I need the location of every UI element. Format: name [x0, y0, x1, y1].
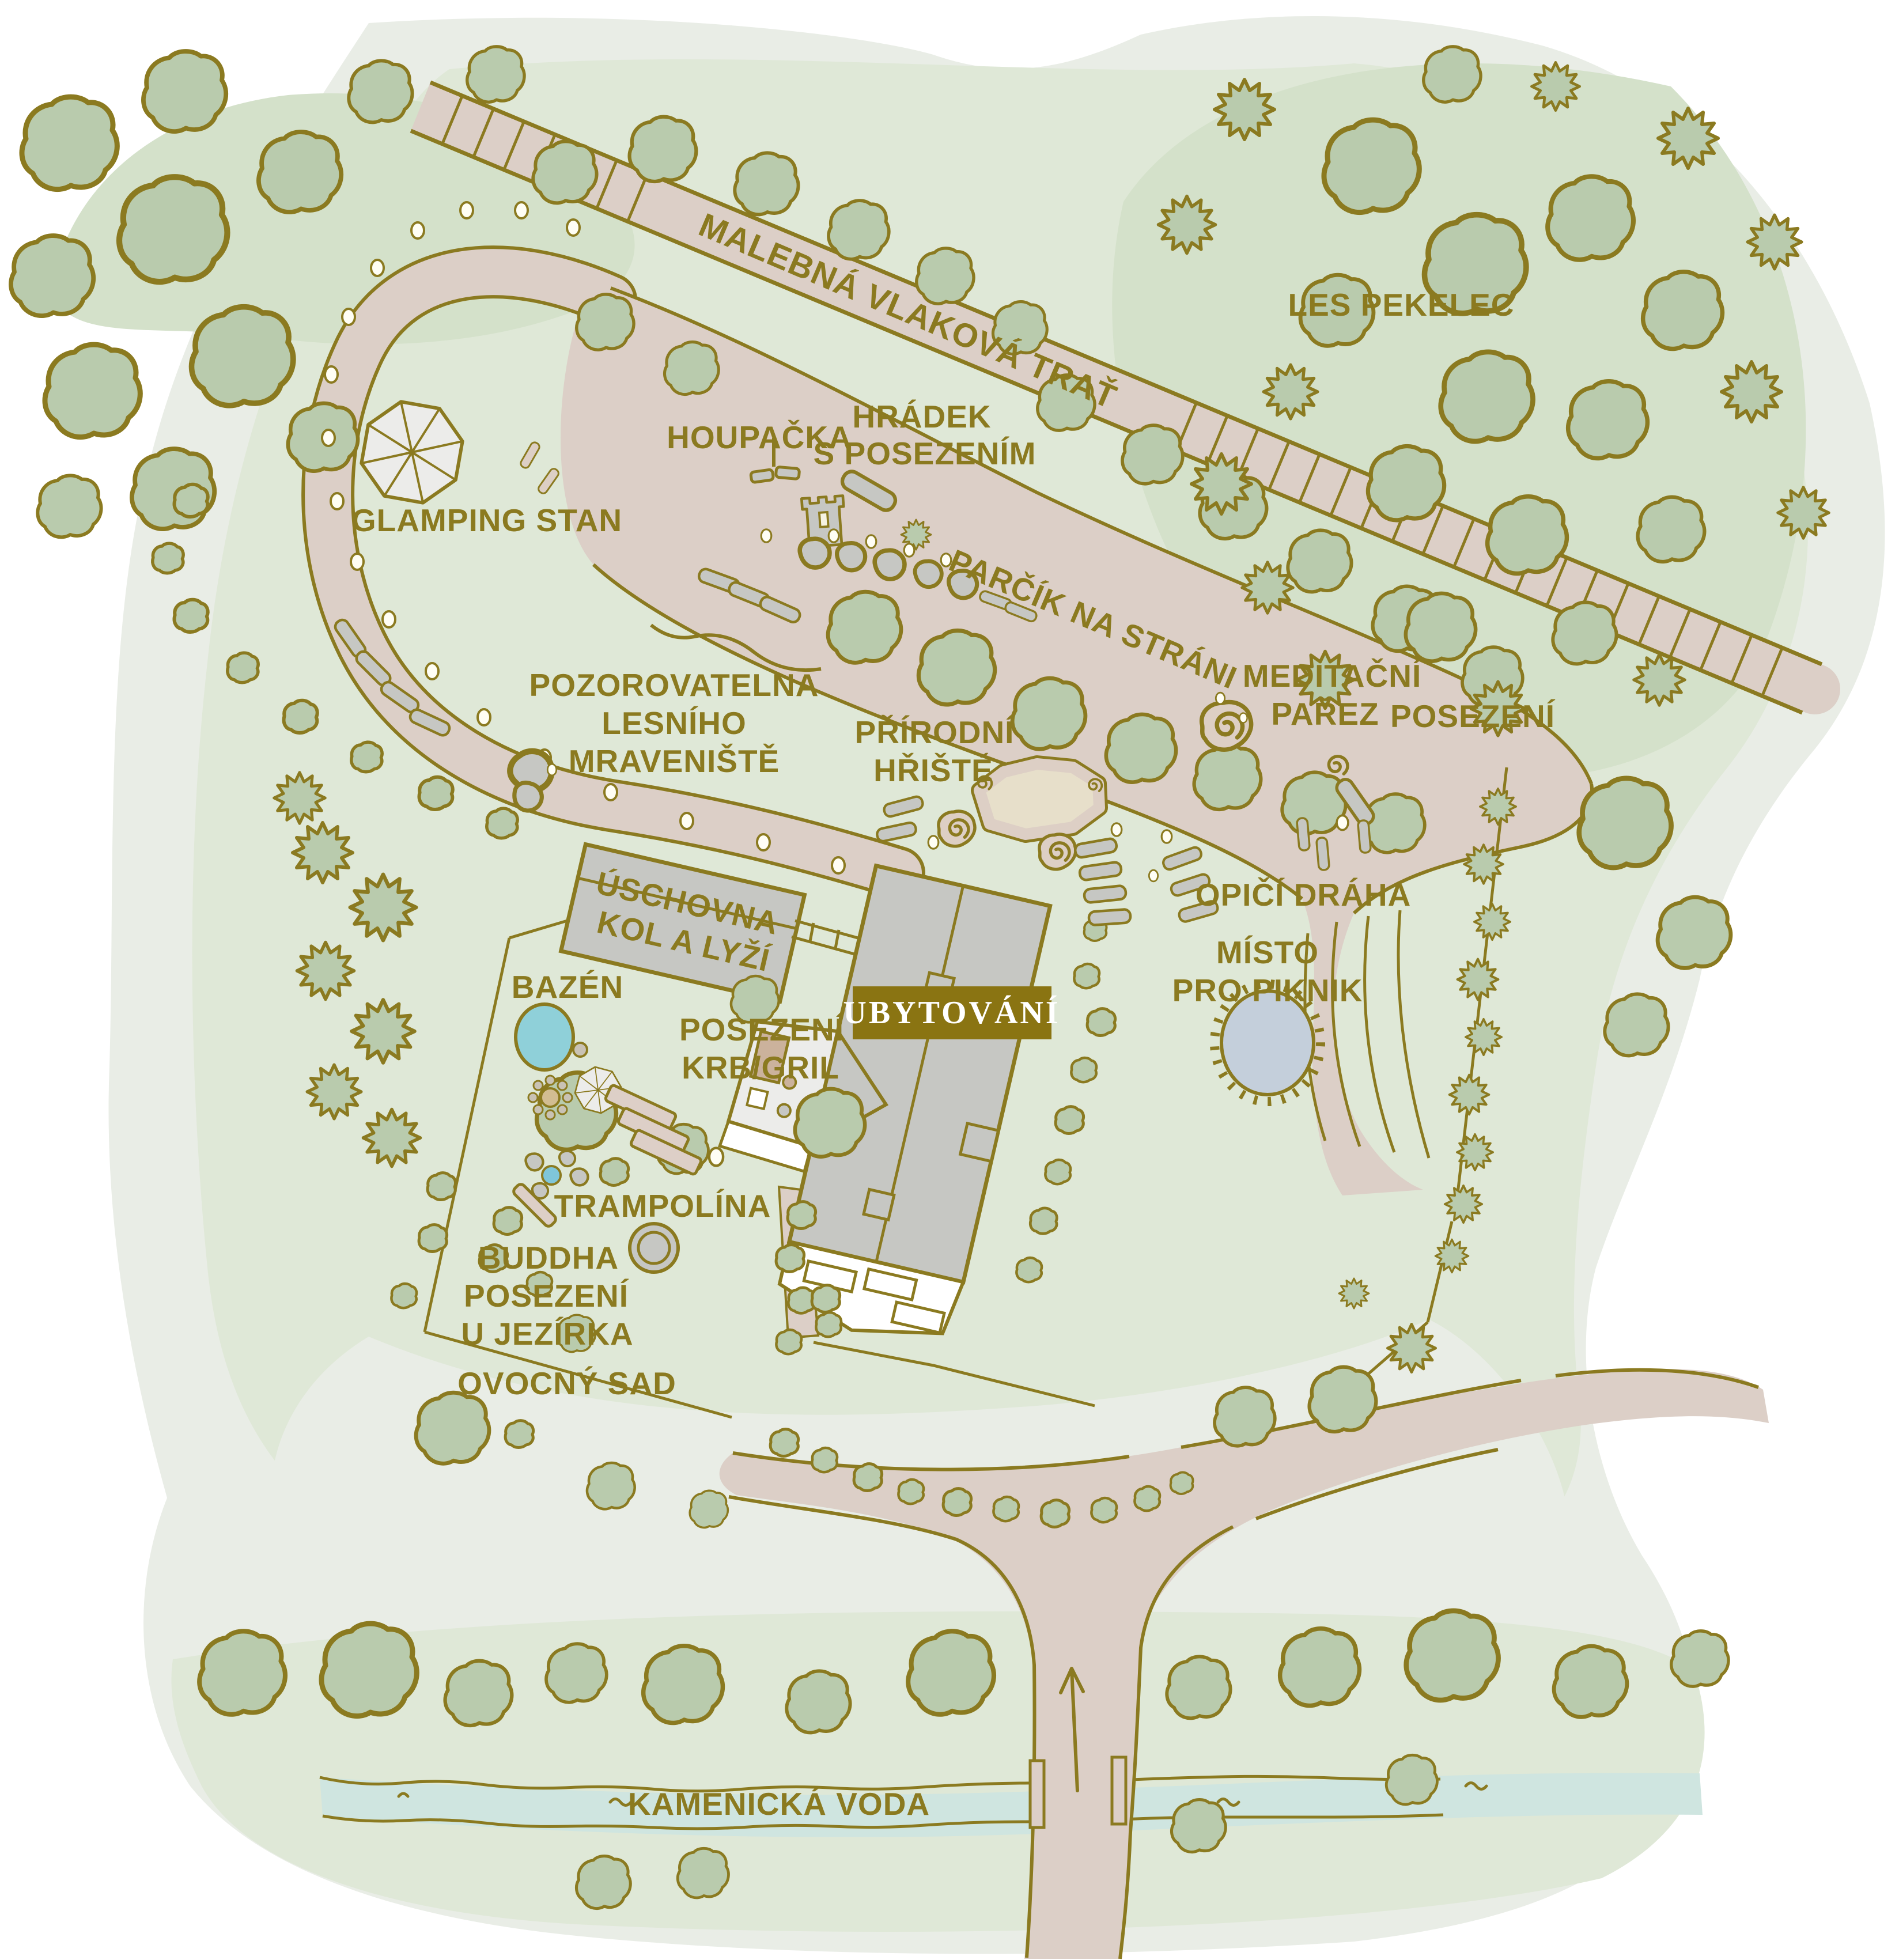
tree [1167, 1656, 1230, 1718]
tree [1364, 794, 1425, 853]
tree [917, 248, 974, 304]
label-buddha: BUDDHA [478, 1240, 619, 1276]
tree [1012, 678, 1085, 749]
bush [1087, 1009, 1115, 1036]
tree [416, 1393, 489, 1463]
label-meditation: PAŘEZ [1271, 696, 1379, 732]
tree [1310, 1367, 1376, 1432]
bush [1030, 1208, 1057, 1234]
tree [1424, 47, 1481, 102]
tree [533, 141, 596, 203]
bush [1074, 964, 1099, 988]
stone [573, 1043, 587, 1057]
stone [1216, 693, 1224, 704]
tree [11, 236, 93, 316]
tree [690, 1490, 728, 1527]
tree [1638, 497, 1705, 562]
label-river: KAMENICKÁ VODA [628, 1786, 930, 1822]
firepit-icon [528, 1076, 572, 1119]
tree [1172, 1800, 1226, 1852]
label-orchard: OVOCNÝ SAD [457, 1365, 676, 1401]
bush [175, 485, 208, 517]
bush [494, 1208, 521, 1235]
label-buddha: POSEZENÍ [464, 1278, 629, 1314]
bush [419, 777, 453, 809]
bush [770, 1429, 798, 1456]
bush [993, 1497, 1019, 1521]
tree [795, 1089, 865, 1157]
bush [1056, 1107, 1083, 1134]
label-forest: LES PEKELEC [1288, 287, 1514, 323]
spiral-stump-icon [1039, 834, 1076, 869]
bush [175, 600, 208, 632]
tree [587, 1463, 635, 1509]
tree [644, 1646, 723, 1723]
label-buddha: U JEZÍRKA [461, 1316, 633, 1352]
bush [812, 1448, 837, 1472]
sandbox-icon [978, 764, 1102, 834]
tree [829, 200, 889, 259]
bush [600, 1159, 628, 1186]
tree [192, 307, 293, 406]
bush [153, 543, 183, 573]
tree [1280, 1629, 1360, 1706]
bush [816, 1312, 841, 1337]
label-castle: HRÁDEK [852, 399, 991, 434]
tree [37, 475, 101, 537]
tree [1368, 447, 1444, 520]
label-trampoline: TRAMPOLÍNA [554, 1188, 771, 1224]
bush [228, 653, 258, 683]
label-seating-grill: POSEZENÍ [679, 1012, 845, 1047]
spiral-stump-icon [939, 811, 975, 846]
label-meditation: MEDITAČNÍ [1243, 658, 1422, 694]
tree [577, 294, 634, 350]
bush [1071, 1058, 1096, 1082]
bush [1016, 1258, 1042, 1282]
bush [943, 1489, 971, 1516]
stone [1337, 815, 1348, 830]
bush [1134, 1486, 1160, 1511]
bridge-icon [1030, 1761, 1044, 1827]
label-seating-grill: KRB/GRIL [682, 1050, 839, 1085]
tree [1194, 745, 1261, 809]
tree [22, 97, 117, 189]
tree [1215, 1387, 1275, 1446]
bush [1091, 1498, 1117, 1522]
bush [505, 1421, 533, 1448]
label-observatory: LESNÍHO [602, 705, 746, 741]
tree [1406, 1611, 1499, 1700]
tree [119, 177, 227, 282]
bush [419, 1225, 447, 1252]
bush [788, 1202, 815, 1229]
tree [1106, 714, 1176, 782]
tree [1554, 1646, 1627, 1717]
bush [351, 742, 382, 772]
label-pool: BAZÉN [512, 969, 623, 1005]
label-monkey-bars: OPIČÍ DRÁHA [1196, 877, 1412, 913]
tree [1643, 272, 1723, 349]
tree [918, 631, 994, 705]
bush [854, 1464, 882, 1491]
tree [349, 60, 412, 122]
bush [1171, 1472, 1193, 1494]
map-canvas: UBYTOVÁNÍ MALEBNÁ VLAKOVÁ TRAŤ LES PEKEL… [0, 0, 1899, 1960]
meditation-stump-icon [1202, 702, 1251, 750]
tree [321, 1624, 417, 1716]
label-seating-hillside: POSEZENÍ [1390, 698, 1556, 734]
tree [1605, 994, 1668, 1055]
label-picnic: MÍSTO [1216, 934, 1319, 970]
bush [1041, 1500, 1069, 1527]
tree [1406, 593, 1476, 661]
tree [259, 132, 341, 212]
bush [812, 1285, 839, 1312]
tree [1324, 120, 1419, 212]
tree [143, 51, 226, 131]
bush [284, 701, 317, 733]
tree [1288, 530, 1351, 592]
stone [1239, 713, 1247, 723]
pool-shape [516, 1004, 573, 1070]
tree [467, 47, 524, 102]
tree [908, 1631, 994, 1714]
tree [1548, 176, 1633, 259]
bush [776, 1330, 801, 1354]
accommodation-badge-label: UBYTOVÁNÍ [843, 995, 1060, 1031]
accommodation-badge: UBYTOVÁNÍ [843, 986, 1060, 1039]
tree [630, 117, 697, 181]
bench [1296, 818, 1310, 850]
site-map: UBYTOVÁNÍ MALEBNÁ VLAKOVÁ TRAŤ LES PEKEL… [0, 0, 1899, 1960]
tree [445, 1661, 512, 1726]
tree [665, 342, 719, 395]
tree [1488, 497, 1567, 574]
bench [1357, 820, 1371, 853]
bush [776, 1245, 804, 1272]
label-picnic: PRO PIKNIK [1172, 973, 1363, 1008]
tree [1568, 381, 1648, 459]
label-playground: HŘIŠTĚ [873, 752, 993, 788]
tree [1658, 897, 1731, 968]
stone [709, 1148, 723, 1166]
tree [1671, 1631, 1728, 1686]
label-playground: PŘÍRODNÍ [855, 714, 1015, 750]
bench [1316, 837, 1329, 870]
tree [735, 153, 798, 214]
label-castle: S POSEZENÍM [814, 436, 1036, 471]
bush [487, 808, 517, 838]
tree [1579, 778, 1671, 868]
tree [1441, 352, 1533, 441]
label-observatory: MRAVENIŠTĚ [569, 743, 780, 779]
bush [898, 1480, 924, 1504]
tree [45, 345, 140, 437]
tree [678, 1848, 728, 1898]
bush [428, 1173, 455, 1200]
tree [199, 1631, 285, 1714]
label-observatory: POZOROVATELNA [529, 667, 819, 703]
tree [546, 1644, 607, 1702]
tree [1122, 425, 1183, 484]
tree [1386, 1755, 1437, 1804]
tree [828, 592, 901, 663]
label-glamping: GLAMPING STAN [351, 502, 622, 538]
tree [786, 1671, 850, 1732]
trampoline-icon [630, 1224, 678, 1272]
tree [1553, 602, 1616, 664]
bridge-icon [1112, 1757, 1126, 1824]
tree [577, 1856, 631, 1909]
bush [1045, 1160, 1070, 1184]
bush [391, 1284, 417, 1308]
